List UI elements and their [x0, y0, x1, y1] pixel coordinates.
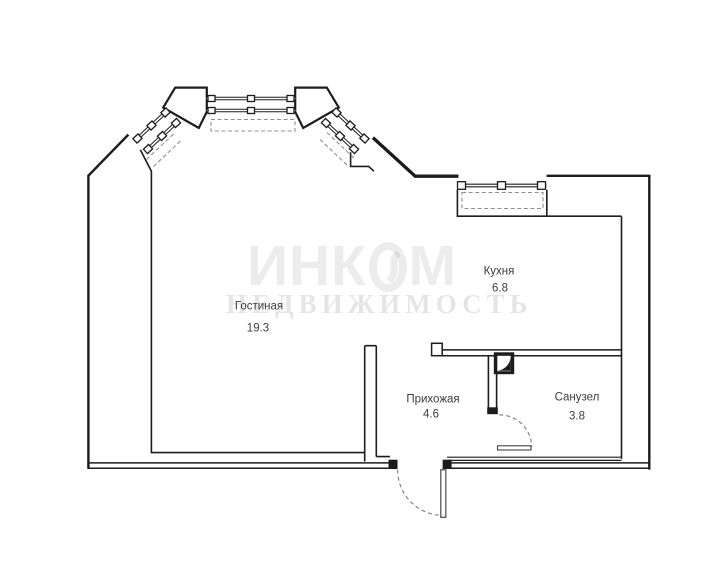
room-label-hallway: Прихожая [406, 394, 459, 406]
entrance-door-leaf [441, 470, 446, 518]
bathroom-door-jamb-cap [487, 407, 498, 414]
bay-pier-right [295, 88, 339, 128]
dashed-sill-lines [147, 120, 544, 209]
room-area-living: 19.3 [247, 323, 269, 335]
room-label-bathroom: Санузел [555, 392, 600, 404]
room-area-hallway: 4.6 [423, 409, 439, 421]
bathroom-door-leaf [498, 446, 532, 450]
room-label-kitchen: Кухня [484, 266, 515, 278]
bay-left-angled-window [138, 113, 177, 150]
bay-right-angled-window [326, 113, 365, 150]
wall-slant-to-kitchen [373, 138, 459, 177]
room-label-living: Гостиная [235, 301, 283, 313]
bay-pier-left [163, 88, 207, 128]
entrance-jamb-left-cap [389, 460, 398, 469]
bathroom-door [498, 415, 532, 450]
room-area-kitchen: 6.8 [492, 283, 508, 295]
room-area-bathroom: 3.8 [569, 411, 585, 423]
entrance-door-swing-arc [398, 470, 444, 516]
bathroom-door-swing-arc [499, 415, 531, 447]
entrance-jamb-right-cap [443, 460, 452, 469]
entrance-door [389, 460, 452, 518]
watermark-brand-right: М [409, 238, 457, 295]
kitchen-doorway-notch [432, 343, 443, 355]
watermark-brand-left: ИНК [247, 238, 367, 295]
vent-shaft [494, 352, 514, 374]
inkom-logo-o-icon [369, 242, 407, 292]
watermark-brand: ИНКМ [247, 238, 457, 295]
floor-plan-page: ИНКМ НЕДВИЖИМОСТЬ Гостиная 19.3 Кухня 6.… [0, 0, 701, 565]
